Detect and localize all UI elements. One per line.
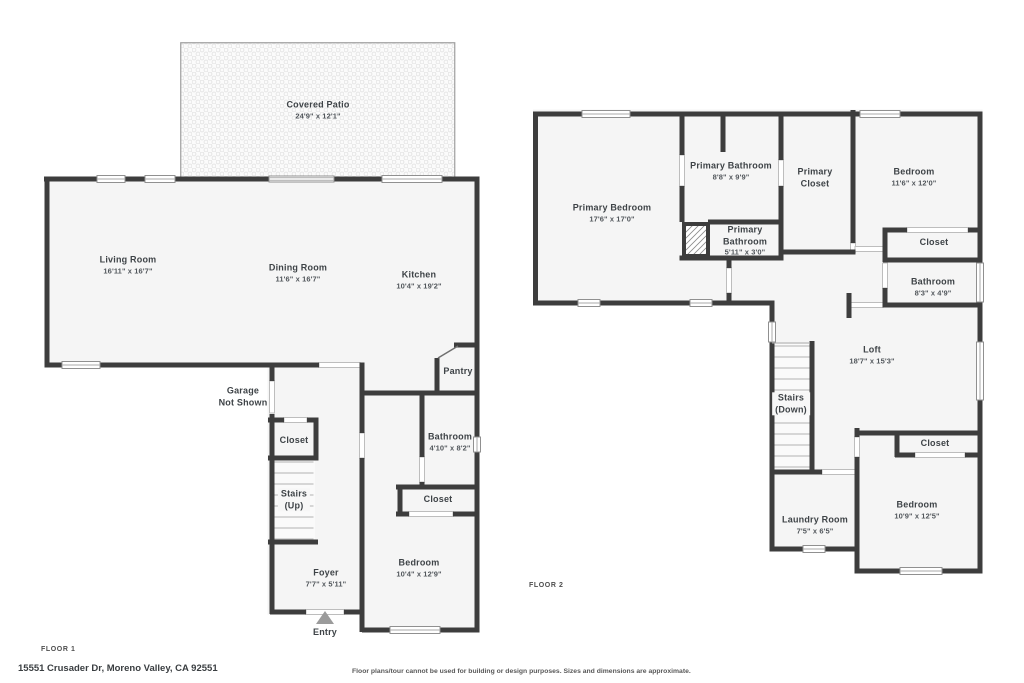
room-label-bathroom-f1: Bathroom4'10" x 8'2" <box>428 431 472 452</box>
room-label-living-room: Living Room16'11" x 16'7" <box>100 254 157 275</box>
room-label-laundry-room: Laundry Room7'5" x 6'5" <box>782 514 848 535</box>
room-label-primary-closet: PrimaryCloset <box>798 166 833 189</box>
room-label-bedroom-f1: Bedroom10'4" x 12'9" <box>396 557 441 578</box>
room-label-pantry: Pantry <box>443 366 472 378</box>
room-label-loft: Loft18'7" x 15'3" <box>849 344 894 365</box>
room-label-bedroom-upper: Bedroom11'6" x 12'0" <box>892 166 937 187</box>
floor1-tag: FLOOR 1 <box>41 646 76 653</box>
floorplan-canvas: Covered Patio24'9" x 12'1" Living Room16… <box>0 0 1024 683</box>
room-label-hall-closet: Closet <box>280 435 309 447</box>
room-label-entry: Entry <box>313 627 337 639</box>
room-label-dining-room: Dining Room11'6" x 16'7" <box>269 262 327 283</box>
room-label-bedroom-lower: Bedroom10'9" x 12'5" <box>894 499 939 520</box>
room-label-primary-bathroom-2: PrimaryBathroom5'11" x 3'0" <box>723 224 767 257</box>
room-label-closet-lower: Closet <box>921 438 950 450</box>
floor2-tag: FLOOR 2 <box>529 582 564 589</box>
address: 15551 Crusader Dr, Moreno Valley, CA 925… <box>18 663 218 674</box>
room-label-closet-upper: Closet <box>920 237 949 249</box>
room-label-covered-patio: Covered Patio24'9" x 12'1" <box>286 99 349 120</box>
room-label-foyer: Foyer7'7" x 5'11" <box>306 567 347 588</box>
room-label-bathroom-f2: Bathroom8'3" x 4'9" <box>911 276 955 297</box>
room-label-bedroom-closet: Closet <box>424 494 453 506</box>
room-label-stairs-up: Stairs(Up) <box>278 488 310 511</box>
shower-hatch <box>684 224 708 256</box>
disclaimer: Floor plans/tour cannot be used for buil… <box>352 668 691 675</box>
room-label-kitchen: Kitchen10'4" x 19'2" <box>396 269 441 290</box>
room-label-stairs-down: Stairs(Down) <box>772 392 810 415</box>
room-label-garage: GarageNot Shown <box>219 385 268 408</box>
room-label-primary-bathroom: Primary Bathroom8'8" x 9'9" <box>690 160 772 181</box>
floorplan-drawing <box>0 0 1024 683</box>
floor1-structure <box>44 43 481 634</box>
room-label-primary-bedroom: Primary Bedroom17'6" x 17'0" <box>573 202 652 223</box>
